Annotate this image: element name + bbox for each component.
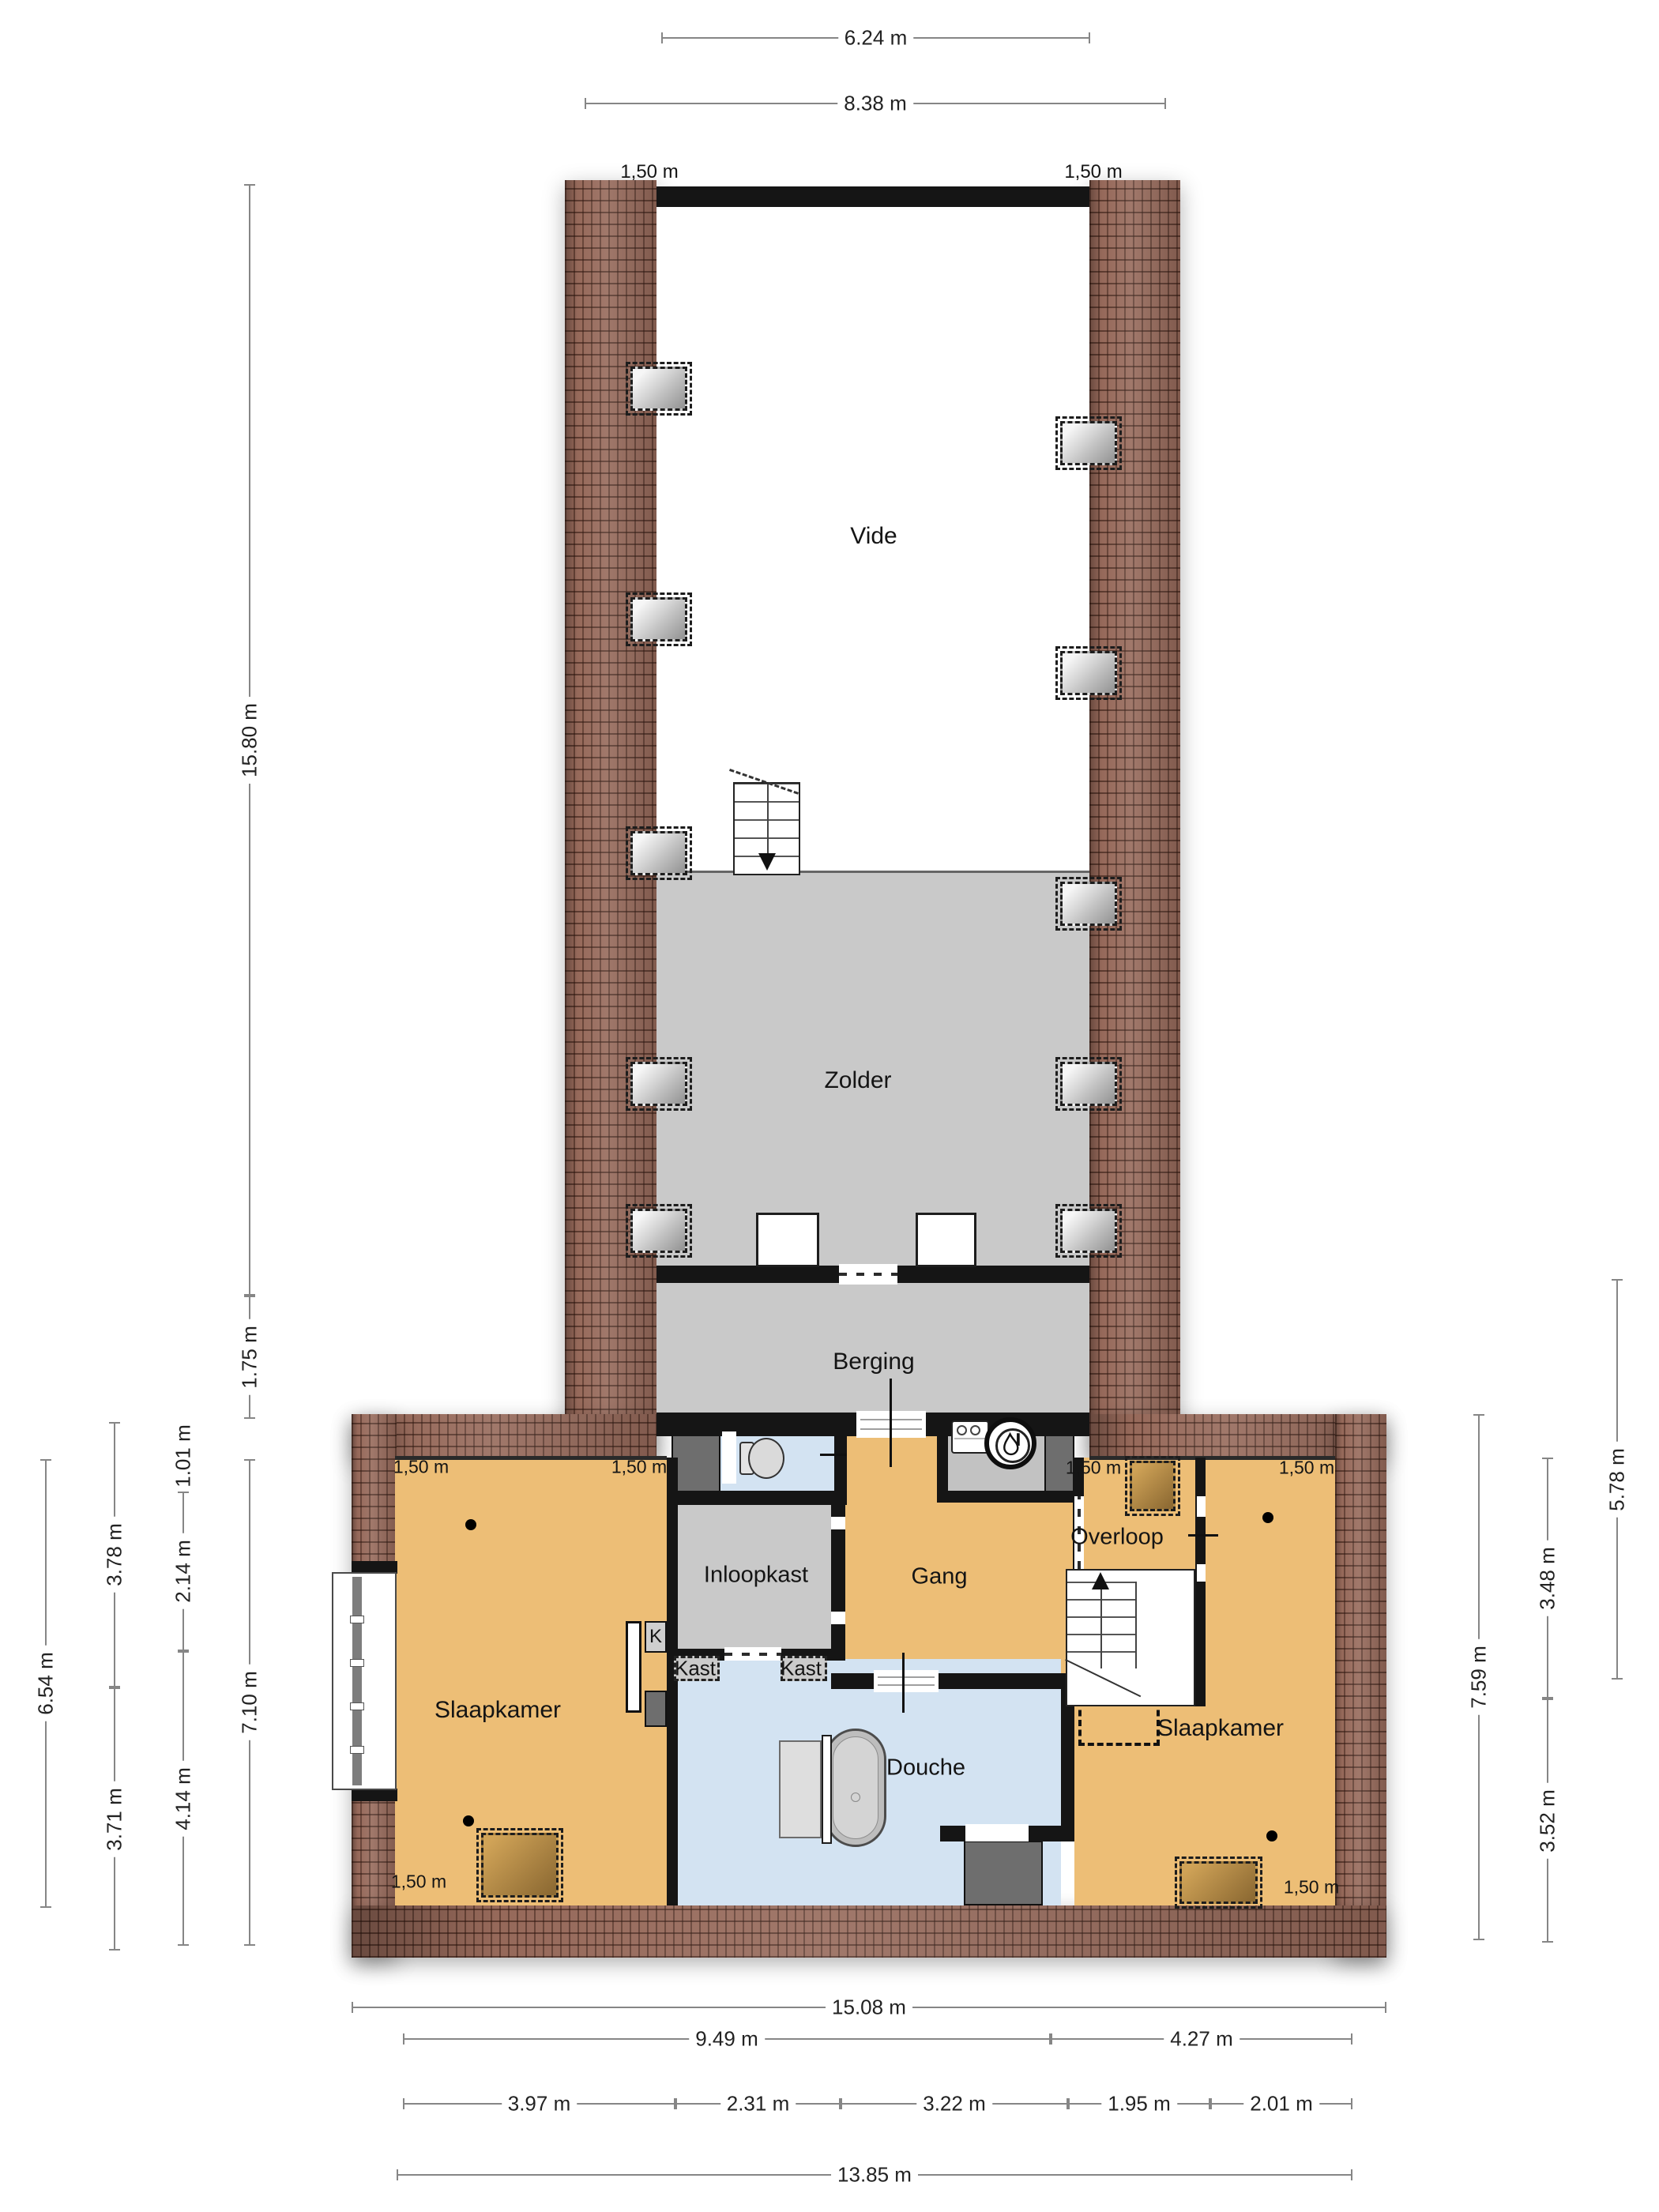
dormer-box-left [756,1213,819,1267]
washer-knob [957,1425,967,1435]
roofline-label-bk1: 1,50 m [393,1457,449,1478]
washer-knob [970,1425,980,1435]
window-left-glazing [352,1577,362,1785]
light-dot-sr1 [1262,1512,1273,1523]
dim-8-38-label: 8.38 m [837,92,913,116]
roof-window-slaapkamer-right [1179,1861,1258,1904]
dim-7-10-label: 7.10 m [238,1665,262,1740]
room-label-vide: Vide [850,523,897,550]
roof-window-l4 [630,1062,687,1106]
floor-slaapkamer-right-upper [1206,1458,1335,1706]
door-marker-berging [890,1379,892,1467]
dim-3-97-label: 3.97 m [502,2092,577,2116]
dim-3-48-label: 3.48 m [1536,1540,1560,1616]
wall-window-stub-bottom [352,1789,397,1801]
window-stairs-east-b [1197,1564,1206,1582]
hinge-inloopkast-b [831,1612,845,1624]
dim-2-01-label: 2.01 m [1243,2092,1319,2116]
room-label-inloopkast: Inloopkast [704,1563,808,1589]
stairs-down-icon [733,782,800,875]
door-zolder-berging [839,1264,897,1285]
wall-gang-washroom [937,1422,948,1503]
room-label-berging: Berging [833,1349,914,1375]
dim-4-14-label: 4.14 m [171,1761,196,1837]
room-label-overloop: Overloop [1070,1525,1164,1551]
shaft-douche [964,1841,1043,1905]
dim-6-54-label: 6.54 m [34,1646,58,1721]
bathtub-drain [851,1793,860,1802]
dim-15-08-label: 15.08 m [826,1996,912,2020]
roof-window-r5 [1060,1209,1117,1253]
shaft-k [645,1691,667,1727]
window-stairs-east-a [1197,1496,1206,1517]
dim-3-52-label: 3.52 m [1536,1783,1560,1859]
closet-label-kast-right: Kast [781,1657,822,1681]
toilet-bowl [748,1438,784,1479]
dim-7-59-label: 7.59 m [1467,1639,1492,1715]
roof-wing-bottom [352,1905,1386,1958]
wall-douche-east [1061,1689,1074,1831]
bathtub-icon [825,1729,886,1847]
roofline-label-bk6: 1,50 m [1284,1877,1339,1898]
dim-2-14-label: 2.14 m [171,1533,196,1609]
stairs-rail [767,784,769,858]
light-dot-sl1 [465,1519,476,1530]
dim-1-95-label: 1.95 m [1101,2092,1177,2116]
arrow-up-icon [1092,1572,1109,1589]
door-toilet [722,1431,736,1484]
wall-douche-bottom-b [1029,1826,1074,1841]
roof-wing-top-left [352,1414,656,1459]
closet-label-kast-left: Kast [675,1657,716,1681]
roof-wing-right [1335,1414,1386,1958]
dim-1-01-label: 1.01 m [171,1418,196,1494]
roof-window-l3 [630,831,687,875]
roof-window-overloop [1130,1461,1176,1511]
door-marker-douche [902,1653,905,1713]
wall-tick-toilet [820,1454,847,1456]
wall-inloopkast-top [667,1491,847,1505]
stairs-treads [1067,1582,1137,1668]
roof-window-r3 [1060,882,1117,926]
floorplan-canvas: VideZolderBergingSlaapkamerInloopkastGan… [0,0,1659,2212]
dim-2-31-label: 2.31 m [720,2092,796,2116]
hinge-inloopkast-a [831,1517,845,1529]
wall-douche-bottom-a [940,1826,965,1841]
roof-window-l1 [630,367,687,411]
shower-screen-icon [822,1735,832,1844]
flame-icon [1000,1432,1024,1459]
roofline-label-bk5: 1,50 m [1279,1458,1334,1479]
edge-vide-zolder [656,871,1089,873]
toilet-icon [739,1438,782,1476]
roofline-label-bk4: 1,50 m [1066,1458,1121,1479]
room-label-gang: Gang [912,1564,968,1590]
dim-6-24-label: 6.24 m [838,26,914,51]
dormer-box-right [916,1213,976,1267]
ceiling-outline-slaapkamer-right [1078,1700,1160,1746]
light-dot-sr2 [1266,1830,1277,1841]
washer-line [954,1438,986,1439]
room-label-slaapkamer-right: Slaapkamer [1157,1715,1284,1742]
roofline-label-bk3: 1,50 m [391,1872,446,1893]
roof-window-l2 [630,597,687,641]
roof-window-slaapkamer-left [481,1833,559,1898]
door-gang-douche [874,1670,939,1692]
window-left-tick4 [350,1746,364,1754]
washing-machine-icon [951,1420,989,1454]
window-left-tick1 [350,1616,364,1623]
door-douche-shaft [965,1824,1029,1841]
door-leaf-slaapkamer-left [626,1621,641,1713]
roofline-label-bk2: 1,50 m [611,1457,667,1478]
floor-gang-upper [834,1422,939,1676]
boiler-icon [984,1417,1036,1469]
room-label-douche: Douche [886,1755,965,1781]
dim-9-49-label: 9.49 m [689,2027,765,2052]
dim-13-85-label: 13.85 m [831,2163,918,2188]
roof-window-r4 [1060,1062,1117,1106]
roofline-label-top-left: 1,50 m [620,161,678,183]
dim-15-80-label: 15.80 m [238,697,262,784]
window-left-tick3 [350,1702,364,1710]
roof-tower-right [1089,180,1180,1458]
light-dot-sl2 [463,1815,474,1826]
vanity-cabinet-icon [779,1740,822,1838]
dim-1-75-label: 1.75 m [238,1319,262,1395]
wall-slaapkamer-middle [667,1458,678,1905]
window-left-tick2 [350,1659,364,1667]
dim-3-71-label: 3.71 m [103,1781,127,1857]
roof-window-r1 [1060,421,1117,465]
wall-tower-top [656,186,1089,207]
closet-label-k: K [649,1626,662,1648]
wall-tick-overloop [1188,1534,1218,1537]
arrow-down-icon [758,853,776,871]
window-left-wall [332,1572,397,1790]
dim-3-22-label: 3.22 m [916,2092,992,2116]
wall-toilet-east [834,1422,847,1495]
door-inloopkast [724,1647,781,1661]
roofline-label-top-right: 1,50 m [1064,161,1122,183]
dim-4-27-label: 4.27 m [1164,2027,1240,2052]
room-label-slaapkamer-left: Slaapkamer [434,1697,561,1724]
stairs-up-icon [1066,1569,1195,1706]
roof-window-r2 [1060,651,1117,695]
roof-window-l5 [630,1209,687,1253]
dim-5-78-label: 5.78 m [1605,1442,1630,1518]
bathtub-inner [833,1736,878,1839]
dim-3-78-label: 3.78 m [103,1517,127,1593]
wall-gang-bottom [831,1673,1076,1689]
room-label-zolder: Zolder [824,1067,891,1094]
wall-washroom-bottom [937,1491,1076,1503]
